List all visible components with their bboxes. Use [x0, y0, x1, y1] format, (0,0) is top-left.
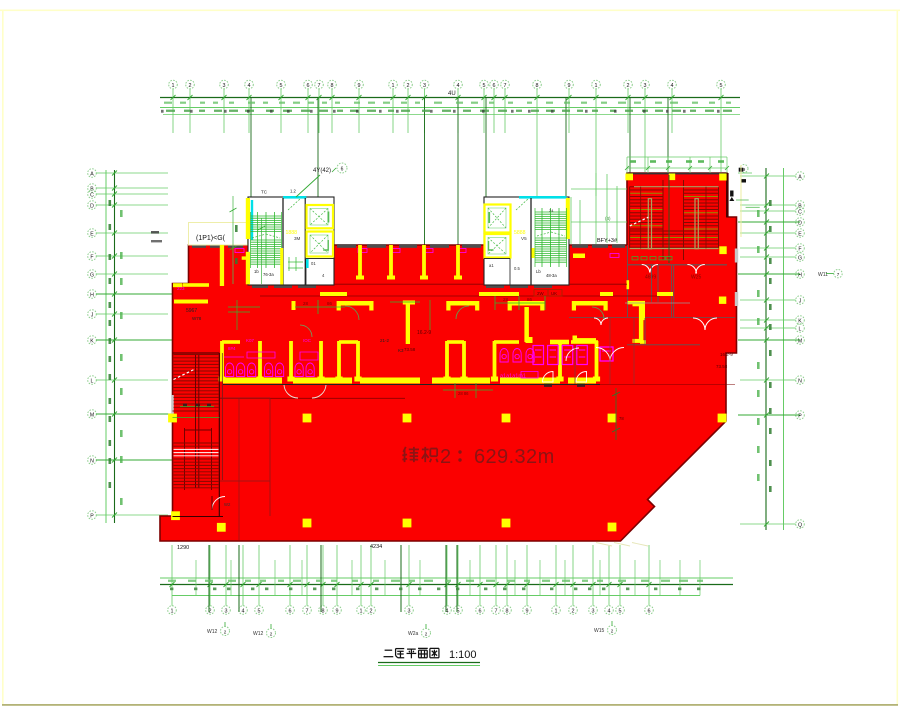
svg-text:9: 9 — [336, 609, 339, 615]
svg-text:8: 8 — [331, 83, 334, 89]
svg-text:1.2: 1.2 — [290, 189, 296, 194]
svg-text:2: 2 — [627, 83, 630, 89]
svg-text:W15: W15 — [594, 628, 605, 634]
svg-text:7: 7 — [837, 272, 840, 277]
svg-text:3M: 3M — [294, 236, 301, 241]
svg-text:4U: 4U — [448, 91, 456, 97]
svg-text:3: 3 — [644, 83, 647, 89]
svg-text:3: 3 — [408, 609, 411, 615]
svg-text:M: M — [798, 339, 802, 345]
svg-text:TC: TC — [261, 190, 268, 195]
svg-text:3: 3 — [592, 609, 595, 615]
svg-text:5: 5 — [258, 609, 261, 615]
svg-text:W2a: W2a — [408, 631, 419, 637]
svg-text:2: 2 — [572, 609, 575, 615]
svg-text:1b: 1b — [254, 269, 259, 274]
svg-text:1:100: 1:100 — [449, 649, 477, 661]
svg-text:5: 5 — [619, 609, 622, 615]
svg-text:8: 8 — [322, 609, 325, 615]
svg-text:7: 7 — [306, 609, 309, 615]
svg-text:P: P — [90, 514, 94, 520]
svg-text:1: 1 — [171, 609, 174, 615]
svg-text:24: 24 — [549, 208, 554, 213]
svg-text:5: 5 — [280, 83, 283, 89]
svg-text:4: 4 — [248, 83, 251, 89]
svg-text:G: G — [798, 256, 802, 262]
svg-text:(4): (4) — [605, 216, 611, 221]
svg-text:BFY+3#: BFY+3# — [597, 238, 618, 244]
svg-text:9: 9 — [526, 609, 529, 615]
svg-text:C: C — [798, 210, 802, 216]
svg-text:a1a1a1m1: a1a1a1m1 — [500, 374, 526, 380]
svg-text:4Y(42): 4Y(42) — [313, 168, 331, 174]
svg-text:N: N — [798, 379, 802, 385]
svg-text:P: P — [798, 414, 802, 420]
svg-text:2W: 2W — [537, 291, 544, 296]
svg-text:4: 4 — [671, 83, 674, 89]
svg-text:W12: W12 — [207, 629, 218, 635]
svg-text:A: A — [90, 172, 94, 178]
svg-text:2: 2 — [189, 83, 192, 89]
svg-text:1: 1 — [360, 609, 363, 615]
svg-text:5: 5 — [483, 83, 486, 89]
svg-text:H: H — [798, 273, 802, 279]
svg-text:7: 7 — [504, 83, 507, 89]
svg-text:4234: 4234 — [370, 544, 382, 550]
svg-text:a1: a1 — [489, 263, 494, 268]
svg-text:6: 6 — [341, 167, 344, 173]
svg-text:6: 6 — [479, 609, 482, 615]
svg-text:J: J — [799, 299, 802, 305]
svg-text:78: 78 — [619, 416, 624, 421]
svg-text:76-3a: 76-3a — [263, 272, 274, 277]
svg-text:86: 86 — [327, 301, 333, 306]
svg-text:21-2: 21-2 — [380, 338, 390, 343]
svg-text:6: 6 — [289, 609, 292, 615]
svg-text:28: 28 — [503, 297, 509, 302]
svg-text:1: 1 — [555, 609, 558, 615]
svg-text:5967: 5967 — [186, 308, 197, 314]
svg-text:73.58: 73.58 — [716, 364, 728, 369]
svg-text:4: 4 — [242, 609, 245, 615]
svg-text:8#4: 8#4 — [228, 346, 236, 351]
svg-text:G: G — [90, 273, 94, 279]
svg-text:V5: V5 — [521, 236, 527, 241]
svg-text:1290: 1290 — [177, 545, 189, 551]
svg-text:2: 2 — [270, 631, 273, 636]
svg-text:73.58: 73.58 — [404, 347, 416, 352]
svg-text:Lb: Lb — [536, 269, 541, 274]
svg-text:(1P1)<G(: (1P1)<G( — [196, 235, 226, 242]
svg-text:H: H — [90, 293, 94, 299]
svg-text:F: F — [798, 247, 801, 253]
svg-text:3: 3 — [225, 609, 228, 615]
svg-text:8: 8 — [536, 83, 539, 89]
svg-text:0.5: 0.5 — [514, 266, 520, 271]
svg-text:4: 4 — [608, 609, 611, 615]
svg-text:223: 223 — [177, 286, 185, 291]
svg-text:M: M — [90, 413, 94, 419]
svg-text:28 86: 28 86 — [458, 391, 469, 396]
svg-text:E: E — [798, 232, 802, 238]
svg-text:J: J — [91, 313, 94, 319]
svg-text:2: 2 — [425, 631, 428, 636]
svg-text:629.32m: 629.32m — [474, 446, 555, 468]
svg-text:W78: W78 — [192, 316, 202, 321]
svg-text:6: 6 — [493, 83, 496, 89]
svg-text:1: 1 — [392, 83, 395, 89]
svg-text:7: 7 — [495, 609, 498, 615]
svg-text:16.2-9: 16.2-9 — [720, 352, 733, 357]
svg-text:2: 2 — [370, 609, 373, 615]
svg-text:01: 01 — [311, 261, 316, 266]
svg-text:E: E — [90, 232, 94, 238]
svg-text:4: 4 — [457, 83, 460, 89]
svg-text:IOC: IOC — [303, 338, 312, 343]
svg-text:D: D — [90, 204, 94, 210]
svg-text:W25: W25 — [691, 275, 702, 281]
svg-text:2: 2 — [224, 629, 227, 634]
svg-text:6: 6 — [307, 83, 310, 89]
svg-text:F: F — [90, 255, 93, 261]
svg-text:2: 2 — [611, 628, 614, 633]
svg-text:A: A — [798, 175, 802, 181]
svg-text:2: 2 — [440, 446, 451, 468]
svg-text:9: 9 — [568, 83, 571, 89]
svg-text:16.2-9: 16.2-9 — [417, 330, 431, 336]
svg-text:K: K — [90, 339, 94, 345]
svg-text:3: 3 — [223, 83, 226, 89]
svg-text:6: 6 — [648, 609, 651, 615]
svg-text:9: 9 — [358, 83, 361, 89]
svg-text:UK: UK — [551, 291, 557, 296]
svg-text:86: 86 — [527, 297, 533, 302]
svg-text:W11: W11 — [818, 272, 828, 278]
svg-text:8: 8 — [506, 609, 509, 615]
svg-text:N: N — [90, 459, 94, 465]
svg-text:K07: K07 — [246, 338, 255, 343]
svg-text:1: 1 — [172, 83, 175, 89]
svg-text:L: L — [91, 379, 94, 385]
svg-text:W2: W2 — [224, 502, 231, 507]
svg-text:Q: Q — [798, 523, 802, 529]
svg-text:28: 28 — [303, 301, 309, 306]
svg-text:2: 2 — [407, 83, 410, 89]
svg-text:C: C — [90, 193, 94, 199]
svg-text:5: 5 — [720, 83, 723, 89]
svg-text:48-3a: 48-3a — [546, 273, 557, 278]
svg-text:W12: W12 — [253, 631, 264, 637]
svg-text:4699: 4699 — [645, 275, 656, 281]
svg-text:7: 7 — [318, 83, 321, 89]
svg-text:D: D — [798, 221, 802, 227]
svg-text:L: L — [799, 327, 802, 333]
svg-text:3: 3 — [423, 83, 426, 89]
svg-text:1: 1 — [595, 83, 598, 89]
